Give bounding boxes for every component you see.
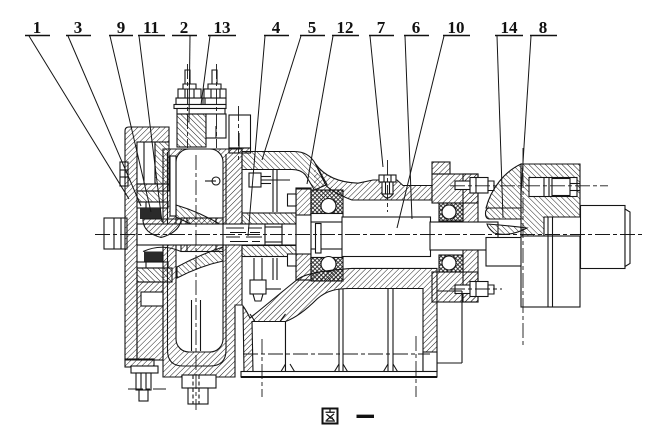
svg-text:7: 7: [377, 18, 386, 37]
svg-text:6: 6: [412, 18, 421, 37]
svg-text:13: 13: [214, 18, 231, 37]
svg-text:2: 2: [180, 18, 189, 37]
svg-text:14: 14: [501, 18, 519, 37]
svg-text:8: 8: [539, 18, 548, 37]
svg-text:11: 11: [143, 18, 159, 37]
svg-text:3: 3: [74, 18, 83, 37]
svg-text:1: 1: [33, 18, 42, 37]
svg-text:4: 4: [272, 18, 281, 37]
svg-text:12: 12: [337, 18, 354, 37]
svg-text:10: 10: [448, 18, 465, 37]
svg-text:9: 9: [117, 18, 126, 37]
svg-text:5: 5: [308, 18, 317, 37]
